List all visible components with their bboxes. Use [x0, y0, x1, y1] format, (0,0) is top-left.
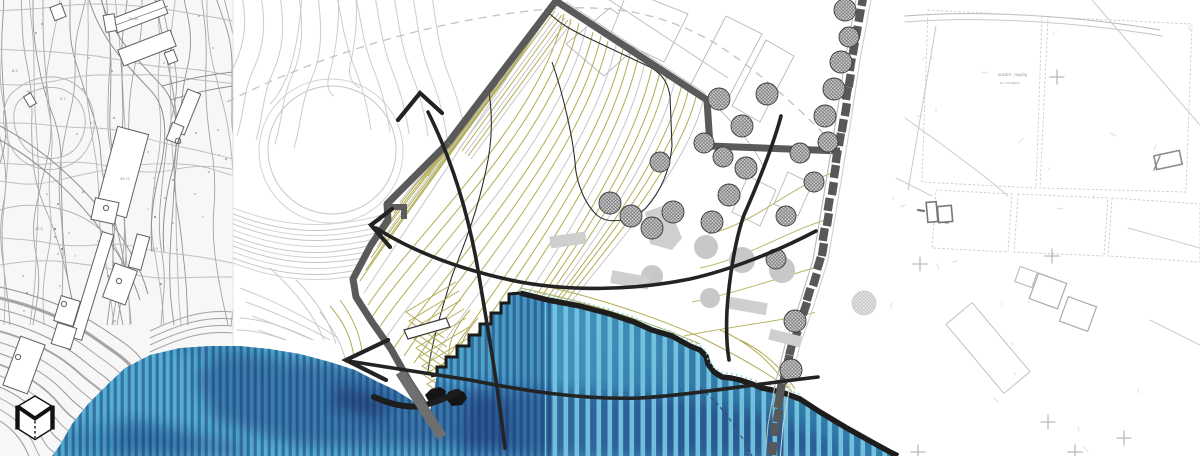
svg-text:35.71: 35.71 — [120, 176, 131, 181]
svg-text:αν σταθμές: αν σταθμές — [1000, 80, 1020, 85]
svg-text:42.5: 42.5 — [35, 226, 44, 231]
svg-text:κατάστ. σαράχ: κατάστ. σαράχ — [998, 71, 1028, 77]
svg-text:21.9: 21.9 — [150, 246, 159, 251]
svg-text:75.34: 75.34 — [128, 16, 139, 21]
svg-text:8.4: 8.4 — [12, 68, 18, 73]
svg-text:9.1: 9.1 — [60, 96, 66, 101]
